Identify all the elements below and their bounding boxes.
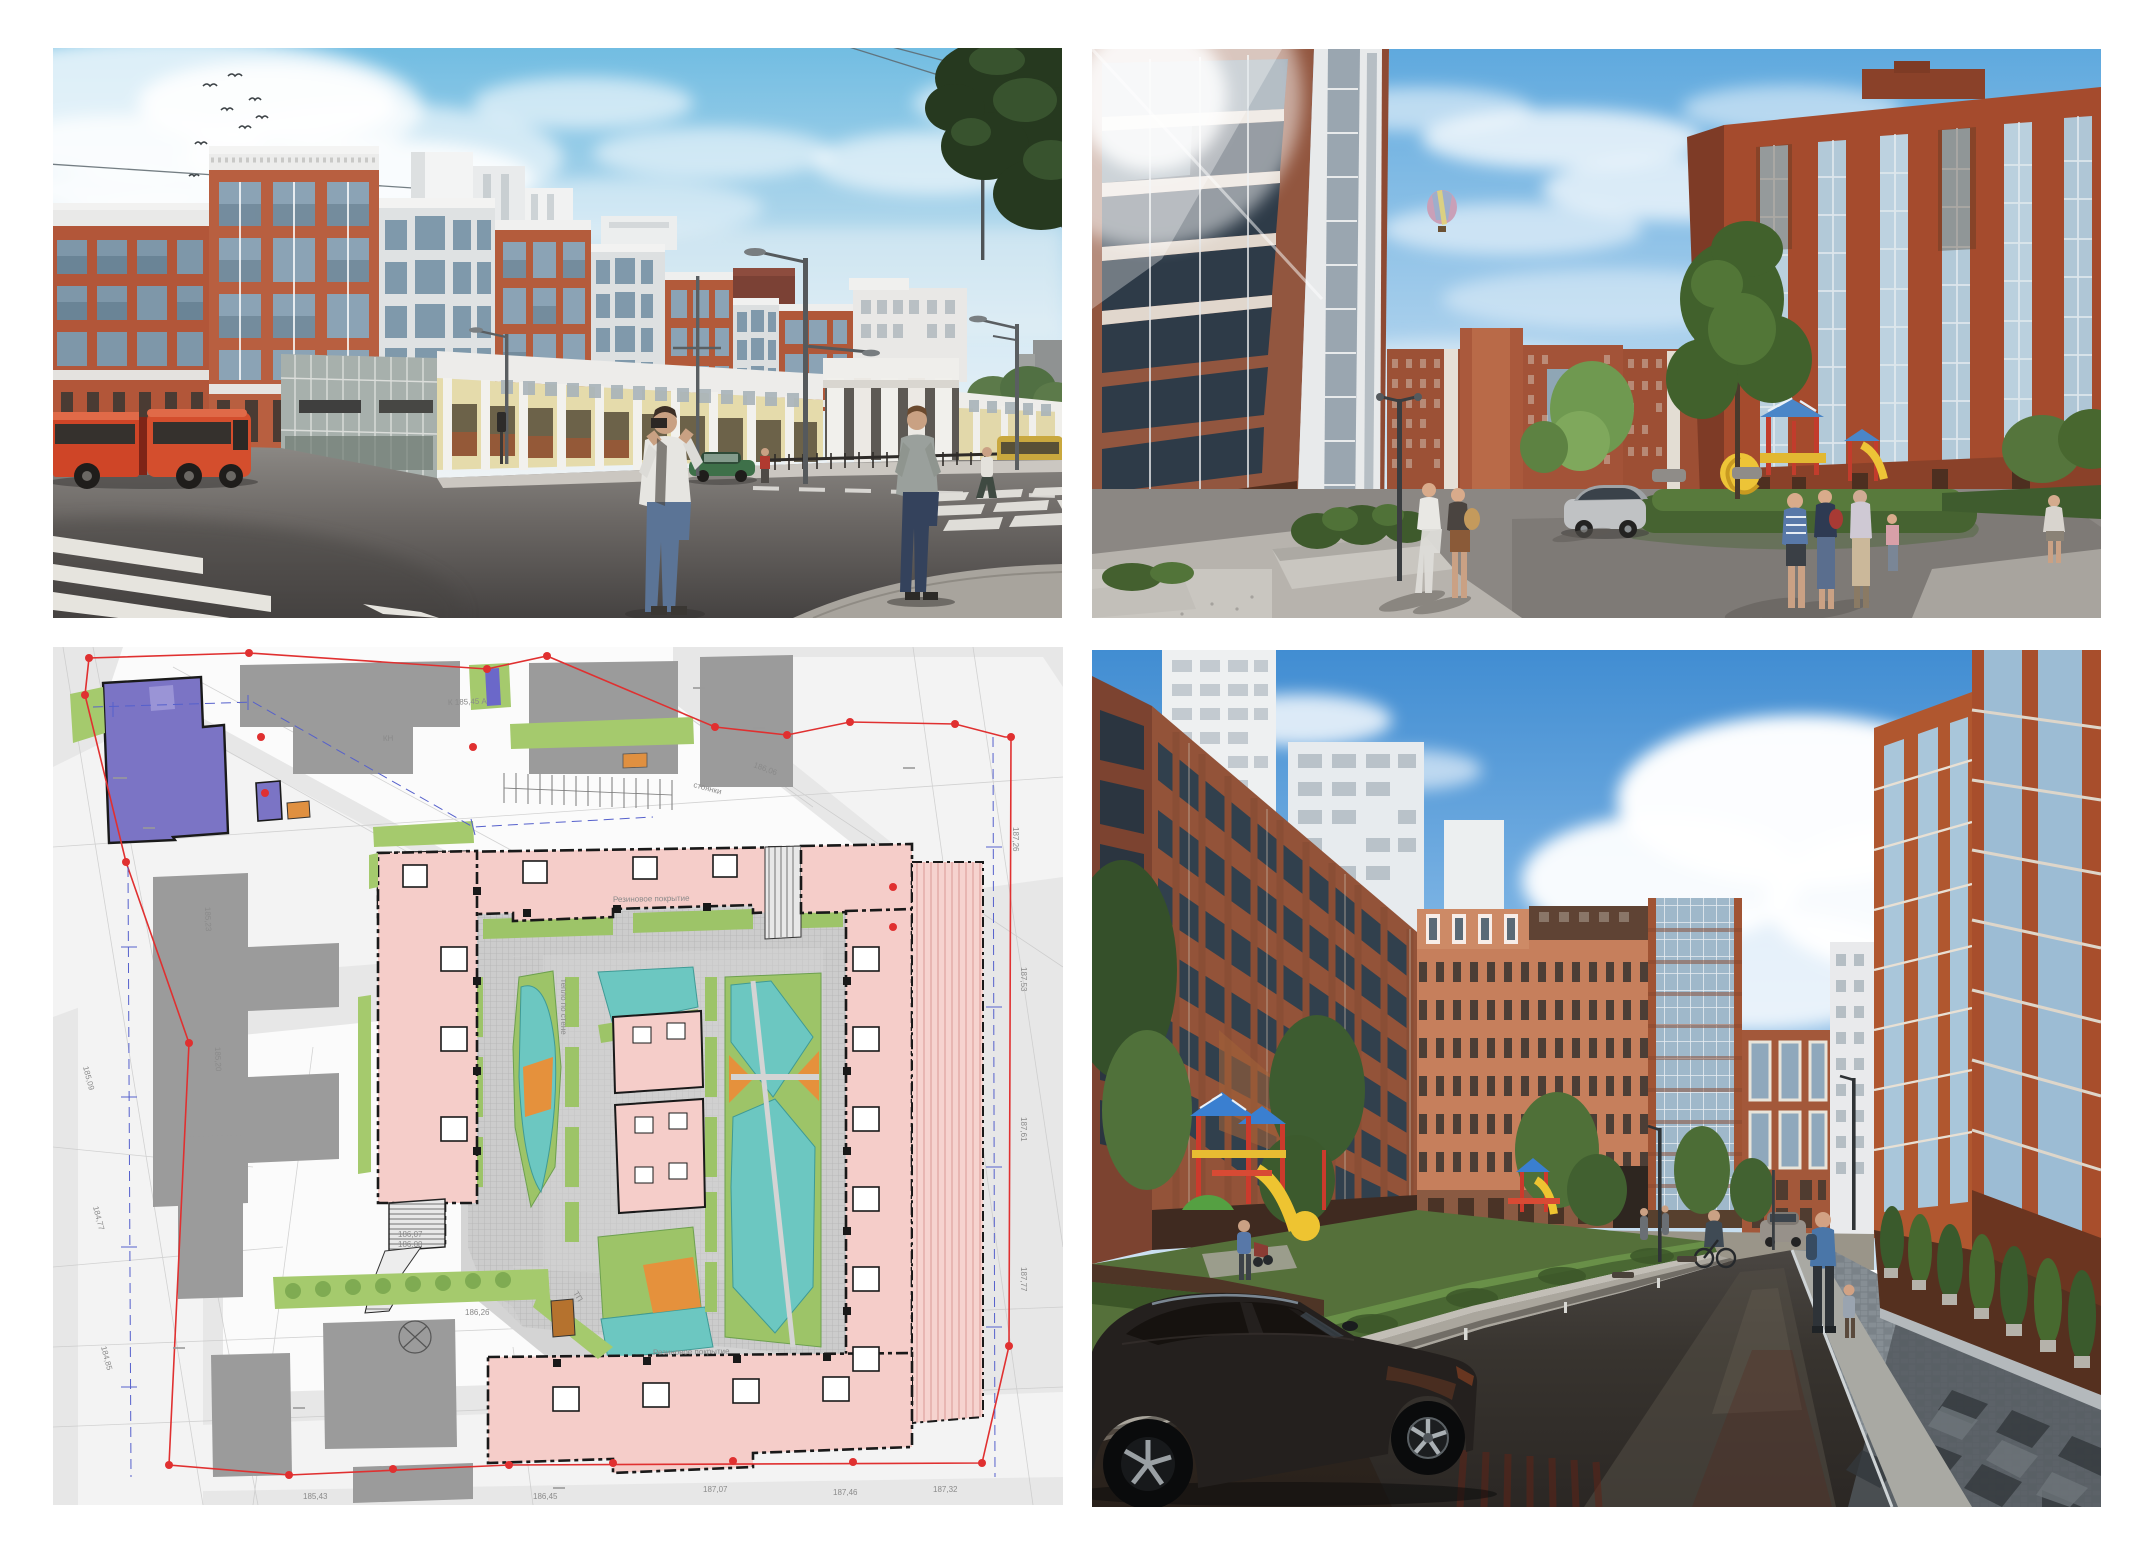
- svg-text:185,20: 185,20: [213, 1047, 223, 1072]
- svg-text:187,46: 187,46: [833, 1488, 858, 1497]
- svg-text:187,32: 187,32: [933, 1485, 958, 1494]
- svg-text:186,45: 186,45: [533, 1492, 558, 1501]
- svg-text:Резиновое покрытие: Резиновое покрытие: [613, 894, 690, 904]
- svg-text:185,43: 185,43: [303, 1492, 328, 1501]
- svg-text:187,77: 187,77: [1019, 1267, 1028, 1292]
- svg-text:186,07: 186,07: [398, 1230, 423, 1239]
- svg-text:К 185,45 А: К 185,45 А: [448, 697, 488, 707]
- svg-text:187,53: 187,53: [1019, 967, 1028, 992]
- svg-text:186,00: 186,00: [398, 1240, 423, 1249]
- svg-text:КН: КН: [383, 734, 394, 743]
- svg-text:тепло по стене: тепло по стене: [559, 979, 568, 1035]
- svg-text:186,26: 186,26: [465, 1308, 490, 1317]
- svg-text:187,26: 187,26: [1011, 827, 1020, 852]
- svg-text:Резиновое покрытие: Резиновое покрытие: [653, 1347, 730, 1357]
- svg-text:187,61: 187,61: [1019, 1117, 1028, 1142]
- svg-text:185,23: 185,23: [203, 907, 213, 932]
- svg-text:187,07: 187,07: [703, 1485, 728, 1494]
